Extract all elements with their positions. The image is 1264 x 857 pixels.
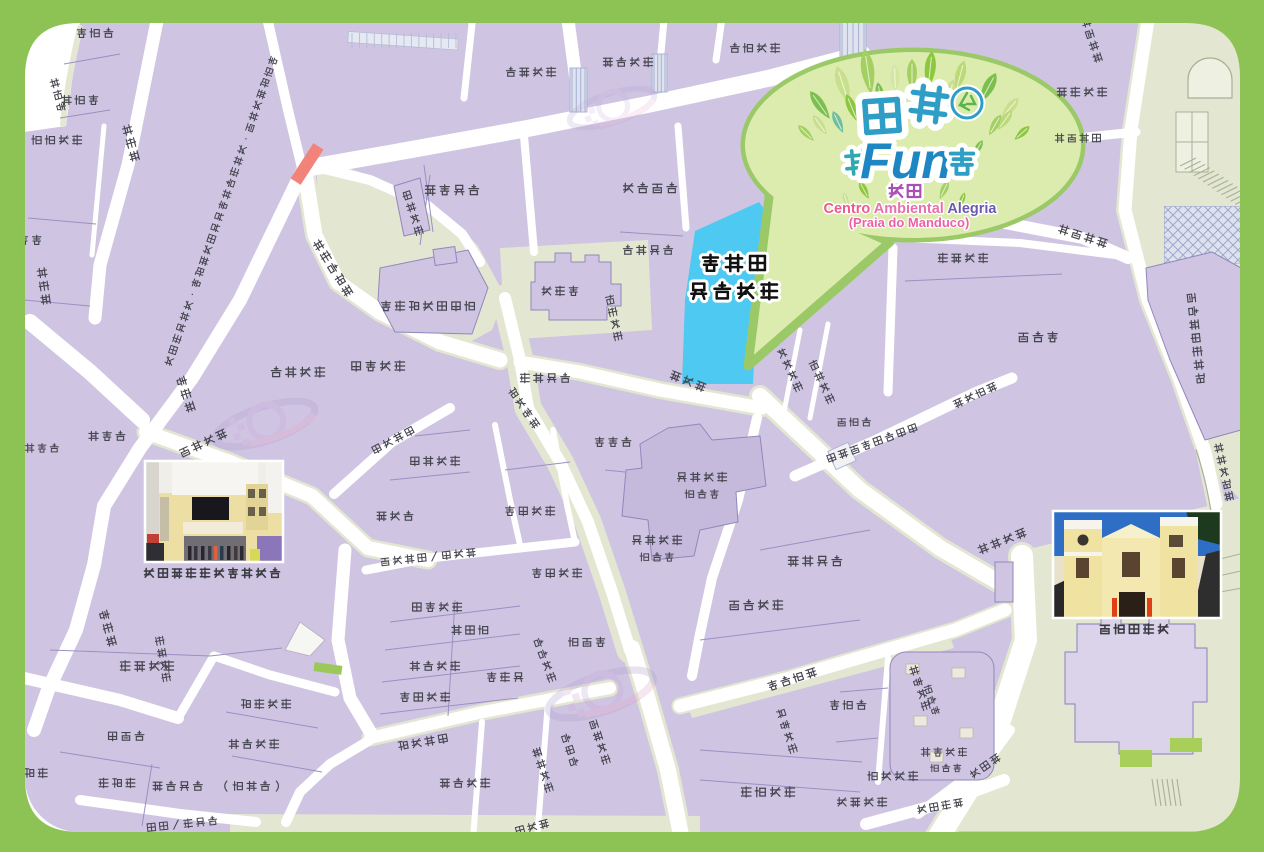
svg-text:Fun: Fun xyxy=(860,133,952,189)
svg-text:(Praia do Manduco): (Praia do Manduco) xyxy=(849,215,970,230)
